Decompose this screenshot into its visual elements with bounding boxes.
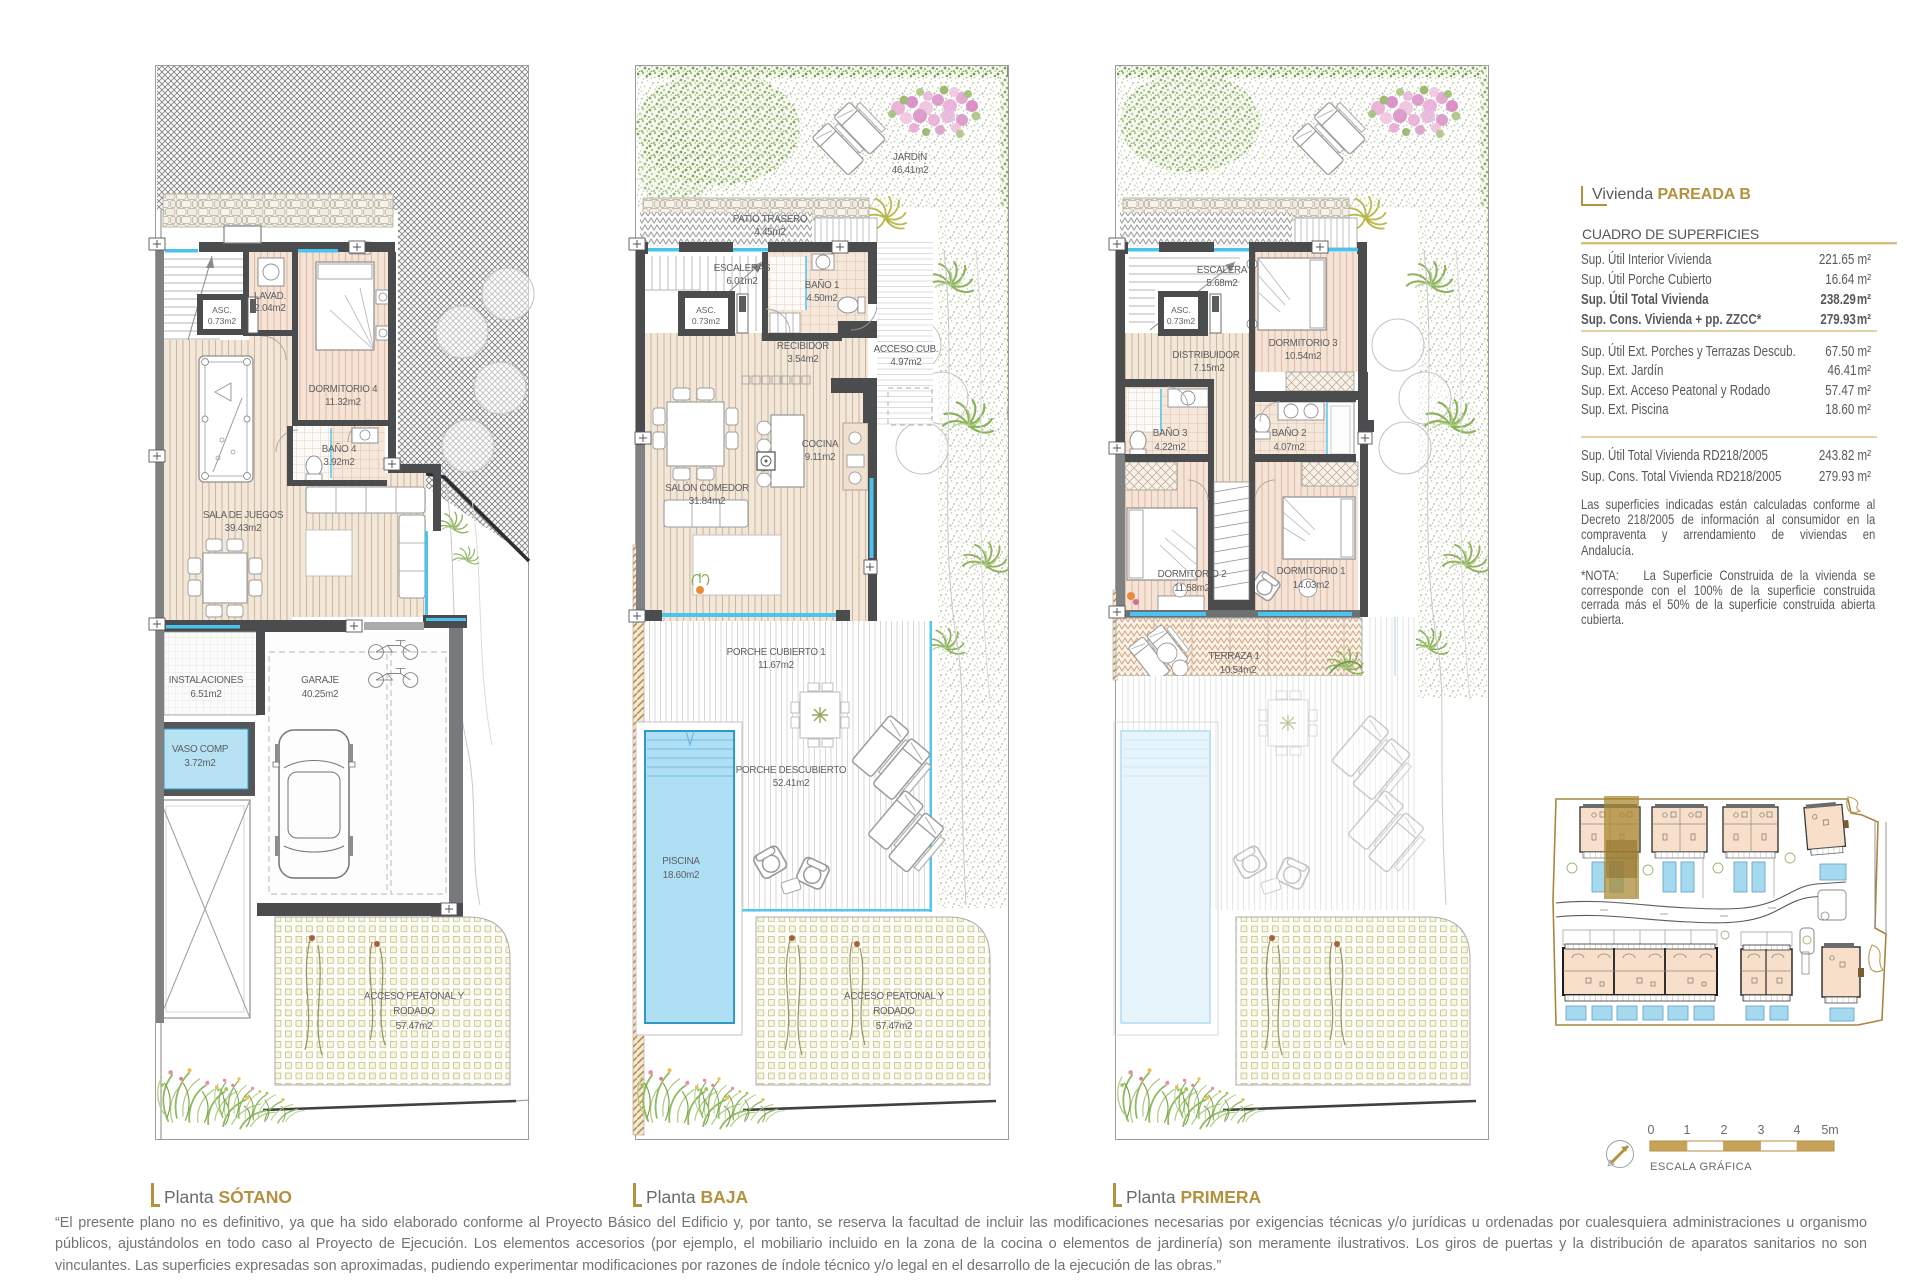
- svg-text:RODADO: RODADO: [393, 1006, 435, 1017]
- svg-text:5.68m2: 5.68m2: [1206, 278, 1237, 289]
- svg-text:PATIO TRASERO: PATIO TRASERO: [733, 214, 808, 225]
- svg-text:10.54m2: 10.54m2: [1220, 665, 1256, 676]
- svg-text:DORMITORIO 3: DORMITORIO 3: [1269, 338, 1338, 349]
- svg-text:40.25m2: 40.25m2: [302, 689, 338, 700]
- svg-text:ASC.: ASC.: [696, 305, 716, 315]
- svg-text:4.07m2: 4.07m2: [1273, 442, 1304, 453]
- svg-text:VASO COMP: VASO COMP: [172, 744, 229, 755]
- svg-text:7.15m2: 7.15m2: [1193, 363, 1224, 374]
- svg-text:4.45m2: 4.45m2: [754, 227, 785, 238]
- svg-text:ESCALA GRÁFICA: ESCALA GRÁFICA: [1650, 1160, 1752, 1173]
- svg-text:3.54m2: 3.54m2: [787, 354, 818, 365]
- svg-text:LAVAD.: LAVAD.: [254, 291, 286, 302]
- svg-text:ASC.: ASC.: [212, 305, 232, 315]
- svg-text:4.50m2: 4.50m2: [806, 293, 837, 304]
- svg-text:PISCINA: PISCINA: [662, 856, 700, 867]
- svg-text:11.32m2: 11.32m2: [325, 397, 361, 408]
- svg-text:0.73m2: 0.73m2: [1167, 316, 1196, 326]
- svg-text:3.92m2: 3.92m2: [323, 457, 354, 468]
- svg-text:3: 3: [1758, 1123, 1765, 1137]
- svg-text:DISTRIBUIDOR: DISTRIBUIDOR: [1172, 350, 1239, 361]
- svg-text:4: 4: [1794, 1123, 1801, 1137]
- svg-text:4.97m2: 4.97m2: [890, 357, 921, 368]
- svg-text:SALÓN COMEDOR: SALÓN COMEDOR: [665, 483, 749, 494]
- svg-text:0.73m2: 0.73m2: [692, 316, 721, 326]
- svg-text:GARAJE: GARAJE: [301, 675, 339, 686]
- svg-text:BAÑO 4: BAÑO 4: [322, 444, 357, 455]
- svg-text:4.22m2: 4.22m2: [1154, 442, 1185, 453]
- svg-text:14.03m2: 14.03m2: [1293, 580, 1329, 591]
- svg-text:ESCALERAS: ESCALERAS: [714, 263, 771, 274]
- svg-text:ACCESO CUB.: ACCESO CUB.: [874, 344, 939, 355]
- svg-text:6.51m2: 6.51m2: [190, 689, 221, 700]
- svg-text:2.04m2: 2.04m2: [254, 303, 285, 314]
- svg-text:COCINA: COCINA: [802, 439, 839, 450]
- svg-text:PORCHE DESCUBIERTO: PORCHE DESCUBIERTO: [736, 765, 847, 776]
- svg-text:BAÑO 2: BAÑO 2: [1272, 428, 1306, 439]
- svg-text:TERRAZA 1: TERRAZA 1: [1208, 651, 1259, 662]
- svg-text:0.73m2: 0.73m2: [208, 316, 237, 326]
- svg-text:1: 1: [1684, 1123, 1691, 1137]
- svg-text:DORMITORIO 1: DORMITORIO 1: [1277, 566, 1346, 577]
- svg-text:39.43m2: 39.43m2: [225, 523, 261, 534]
- svg-text:ESCALERA: ESCALERA: [1197, 265, 1248, 276]
- svg-text:6.01m2: 6.01m2: [726, 276, 757, 287]
- svg-text:ASC.: ASC.: [1171, 305, 1191, 315]
- svg-text:ACCESO PEATONAL Y: ACCESO PEATONAL Y: [364, 991, 465, 1002]
- svg-text:11.58m2: 11.58m2: [1174, 583, 1210, 594]
- svg-text:DORMITORIO 4: DORMITORIO 4: [309, 384, 378, 395]
- svg-text:RODADO: RODADO: [873, 1006, 915, 1017]
- svg-text:46.41m2: 46.41m2: [892, 165, 928, 176]
- svg-text:JARDÍN: JARDÍN: [893, 152, 927, 163]
- svg-text:52.41m2: 52.41m2: [773, 778, 809, 789]
- svg-text:2: 2: [1721, 1123, 1728, 1137]
- svg-text:3.72m2: 3.72m2: [184, 758, 215, 769]
- svg-text:DORMITORIO 2: DORMITORIO 2: [1158, 569, 1227, 580]
- svg-text:PORCHE CUBIERTO 1: PORCHE CUBIERTO 1: [727, 647, 826, 658]
- svg-text:INSTALACIONES: INSTALACIONES: [169, 675, 244, 686]
- svg-text:0: 0: [1648, 1123, 1655, 1137]
- svg-text:9.11m2: 9.11m2: [805, 452, 835, 463]
- svg-text:5m: 5m: [1821, 1123, 1838, 1137]
- svg-text:31.84m2: 31.84m2: [689, 496, 725, 507]
- svg-text:ACCESO PEATONAL Y: ACCESO PEATONAL Y: [844, 991, 945, 1002]
- svg-text:18.60m2: 18.60m2: [663, 870, 699, 881]
- svg-text:11.67m2: 11.67m2: [758, 660, 794, 671]
- svg-text:BAÑO 3: BAÑO 3: [1153, 428, 1188, 439]
- svg-text:57.47m2: 57.47m2: [876, 1021, 912, 1032]
- svg-text:57.47m2: 57.47m2: [396, 1021, 432, 1032]
- svg-text:RECIBIDOR: RECIBIDOR: [777, 341, 829, 352]
- svg-text:SALA DE JUEGOS: SALA DE JUEGOS: [203, 510, 284, 521]
- svg-text:BAÑO 1: BAÑO 1: [805, 280, 839, 291]
- svg-text:10.54m2: 10.54m2: [1285, 351, 1321, 362]
